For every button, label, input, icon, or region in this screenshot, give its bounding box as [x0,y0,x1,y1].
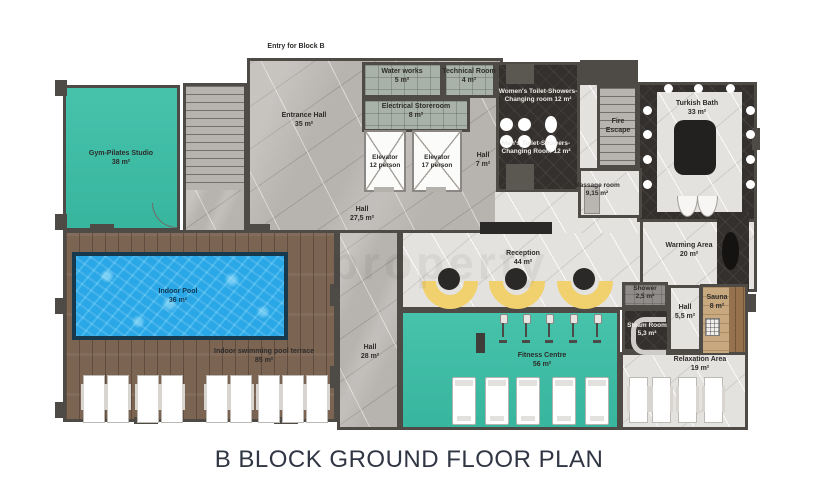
hall-corridor [183,190,247,233]
label-fire-escape: Fire Escape [603,118,633,136]
label-indoor-pool: Indoor Pool36 m² [138,288,218,306]
label-entrance-hall: Entrance Hall35 m² [259,112,349,130]
sofa-table [505,268,527,290]
pool-lounger [306,375,328,423]
wall-pier [246,224,270,233]
turkish-bath-column-dot [643,180,652,189]
label-elevator-17: Elevator17 person [414,154,460,170]
warming-lounger-oval [722,232,739,270]
sauna-heater [705,318,720,336]
label-electrical-storeroom: Electrical Storeroom8 m² [364,103,468,121]
turkish-bath-center-stone [674,120,716,175]
pool-lounger [83,375,105,423]
turkish-bath-column-dot [643,106,652,115]
relax-lounger [652,377,671,423]
wall-pier [55,298,65,314]
sofa-table [438,268,460,290]
toilet [545,116,557,133]
wall-pier [748,294,756,312]
label-steam-room: Steam Room5,3 m² [624,322,670,338]
pool-lounger [230,375,252,423]
label-turkish-bath: Turkish Bath33 m² [666,100,728,118]
turkish-bath-column-dot [643,155,652,164]
relax-lounger [678,377,697,423]
pool-lounger [161,375,183,423]
label-gym: Gym-Pilates Studio38 m² [76,150,166,168]
pool-lounger [258,375,280,423]
label-sauna: Sauna8 m² [701,294,733,312]
room-hall-28 [337,230,400,430]
changing-vestibule-top [506,64,534,84]
pool-lounger [206,375,228,423]
treadmill [585,377,609,425]
wall-pier [330,366,338,388]
turkish-bath-column-dot [746,155,755,164]
wall-pier [55,402,65,418]
changing-vestibule-bottom [506,164,534,190]
sofa-table [573,268,595,290]
elevator-17-door [426,187,446,192]
pool-lounger [137,375,159,423]
gym-equipment [545,314,553,343]
label-massage-room: Massage room9,15 m² [569,182,625,198]
wall-pier [330,284,338,306]
label-womens-changing: Women's Toilet-Showers-Changing room12 m… [498,88,578,104]
label-fitness-centre: Fitness Centre56 m² [508,352,576,370]
gym-equipment [499,314,507,343]
label-reception: Reception44 m² [496,250,550,268]
turkish-bath-column-dot [746,130,755,139]
turkish-bath-column-dot [726,84,735,93]
fitness-locker [476,333,485,353]
label-pool-terrace: Indoor swimming pool terrace85 m² [214,348,314,366]
treadmill [552,377,576,425]
page-title: B BLOCK GROUND FLOOR PLAN [0,446,818,474]
relax-lounger [629,377,648,423]
gym-equipment [569,314,577,343]
floor-plan-page: Entry for Block B Gym-Pilates Studio38 m… [0,0,818,480]
sink [518,118,531,131]
wall-pier [55,214,67,230]
elevator-12-door [374,187,394,192]
turkish-bath-column-dot [664,84,673,93]
main-staircase [183,83,247,197]
label-warming-area: Warming Area20 m² [660,242,718,260]
entry-label: Entry for Block B [246,43,346,52]
label-elevator-12: Elevator12 person [366,154,404,170]
label-hall-5: Hall5,5 m² [672,304,698,322]
treadmill [485,377,509,425]
label-relaxation-area: Relaxation Area19 m² [664,356,736,374]
label-mens-changing: Men's Toilet-Showers-Changing Room12 m² [492,140,580,156]
gym-equipment [522,314,530,343]
wall-pier [55,80,67,96]
label-technical-room: Technical Room4 m² [440,68,498,86]
turkish-bath-column-dot [746,180,755,189]
treadmill [516,377,540,425]
pool-lounger [107,375,129,423]
wall-segment [580,60,638,85]
turkish-bath-column-dot [643,130,652,139]
wall-pier [90,224,114,233]
reception-desk [480,222,552,234]
sink [500,118,513,131]
relax-lounger [704,377,723,423]
gym-equipment [593,314,601,343]
turkish-bath-column-dot [694,84,703,93]
label-hall-28: Hall28 m² [348,344,392,362]
treadmill [452,377,476,425]
label-hall-27: Hall27,5 m² [338,206,386,224]
label-water-works: Water works5 m² [366,68,438,86]
turkish-bath-column-dot [746,106,755,115]
label-shower: Shower2,5 m² [624,285,666,301]
pool-lounger [282,375,304,423]
